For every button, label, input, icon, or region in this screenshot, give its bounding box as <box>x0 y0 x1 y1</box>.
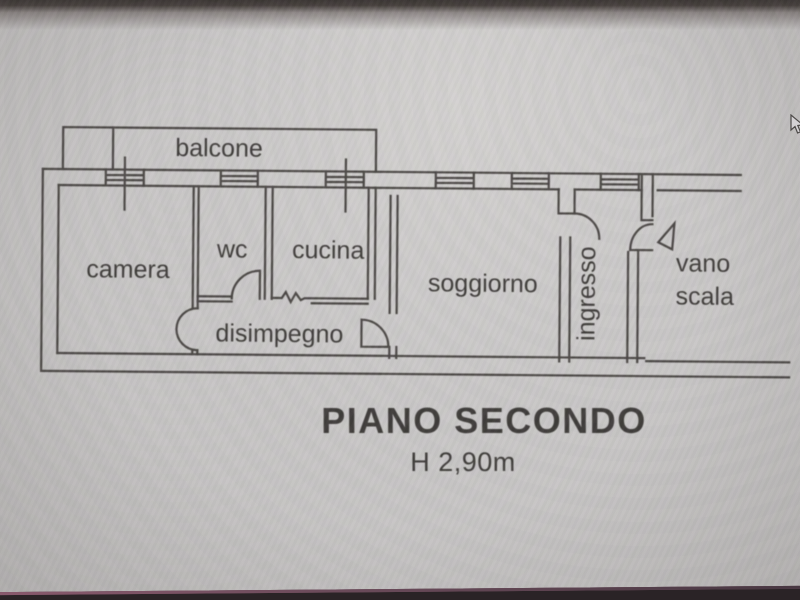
room-label-vano: vano <box>676 249 730 277</box>
room-label-disimpegno: disimpegno <box>215 319 343 348</box>
floor-plan-drawing: balcone camera wc cucina disimpegno sogg… <box>41 127 791 378</box>
plan-height-note: H 2,90m <box>410 447 516 477</box>
arrow-pointer-icon <box>789 114 800 136</box>
room-label-balcone: balcone <box>175 134 263 163</box>
room-label-scala: scala <box>675 282 734 311</box>
room-label-camera: camera <box>86 255 170 284</box>
plan-title: PIANO SECONDO <box>321 400 647 441</box>
room-label-wc: wc <box>216 235 248 263</box>
stair-arrow-icon <box>658 223 674 249</box>
room-label-cucina: cucina <box>292 236 365 265</box>
room-label-ingresso: ingresso <box>572 246 601 341</box>
room-label-soggiorno: soggiorno <box>428 269 538 298</box>
screen-photo: balcone camera wc cucina disimpegno sogg… <box>0 0 800 600</box>
floor-plan-svg: balcone camera wc cucina disimpegno sogg… <box>0 0 800 600</box>
